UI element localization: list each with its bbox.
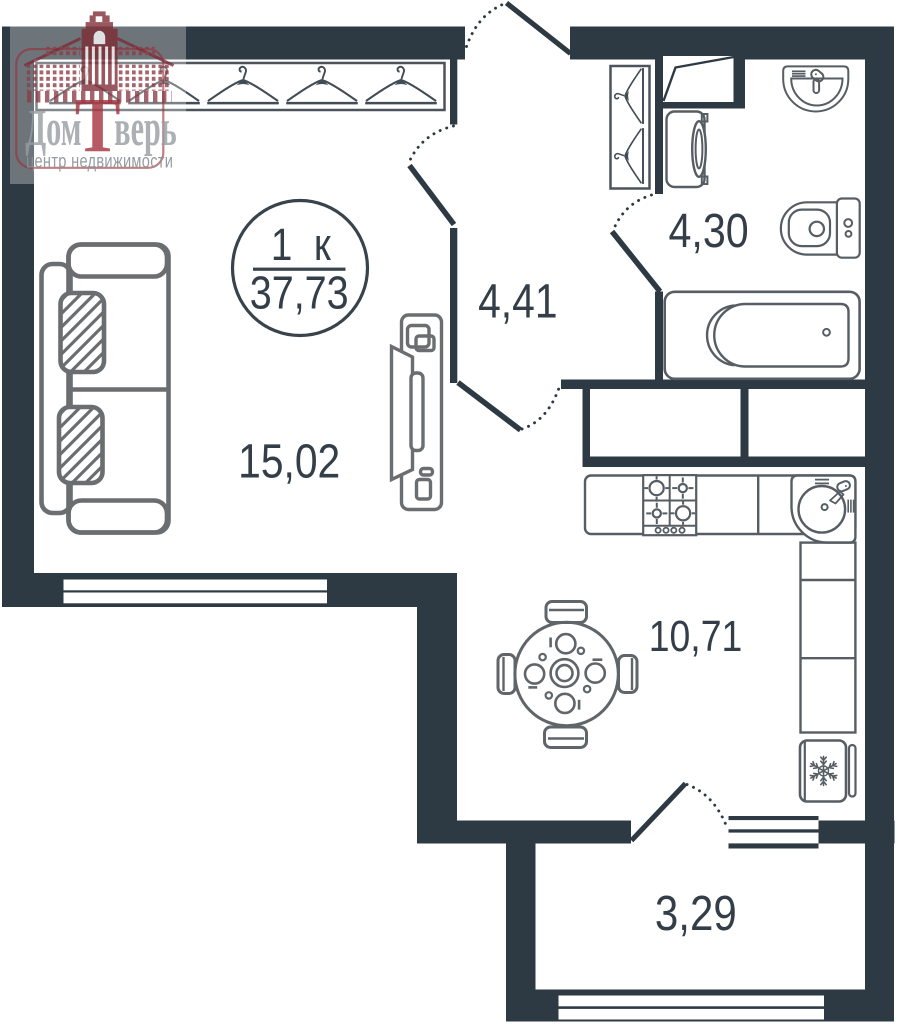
svg-text:центр недвижимости: центр недвижимости — [26, 149, 173, 172]
svg-text:4,41: 4,41 — [478, 275, 557, 328]
svg-text:3,29: 3,29 — [655, 885, 737, 941]
svg-text:1 к: 1 к — [271, 219, 331, 270]
svg-text:15,02: 15,02 — [238, 435, 340, 488]
svg-text:37,73: 37,73 — [250, 268, 349, 320]
svg-text:10,71: 10,71 — [649, 611, 743, 661]
svg-text:4,30: 4,30 — [668, 203, 748, 258]
